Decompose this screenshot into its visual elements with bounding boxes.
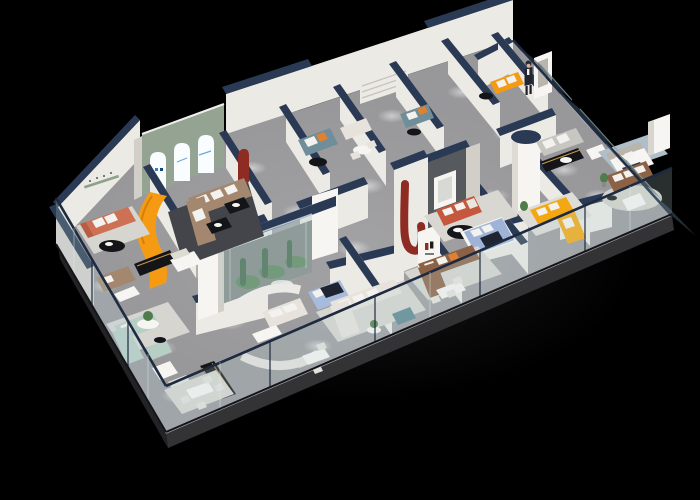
arch-niche-2 [174,143,190,181]
arch-wall-return [134,136,142,200]
showroom-svg [0,0,700,500]
arch-logo-mark [155,168,158,171]
render-canvas [0,0,700,500]
person-face [527,64,531,68]
